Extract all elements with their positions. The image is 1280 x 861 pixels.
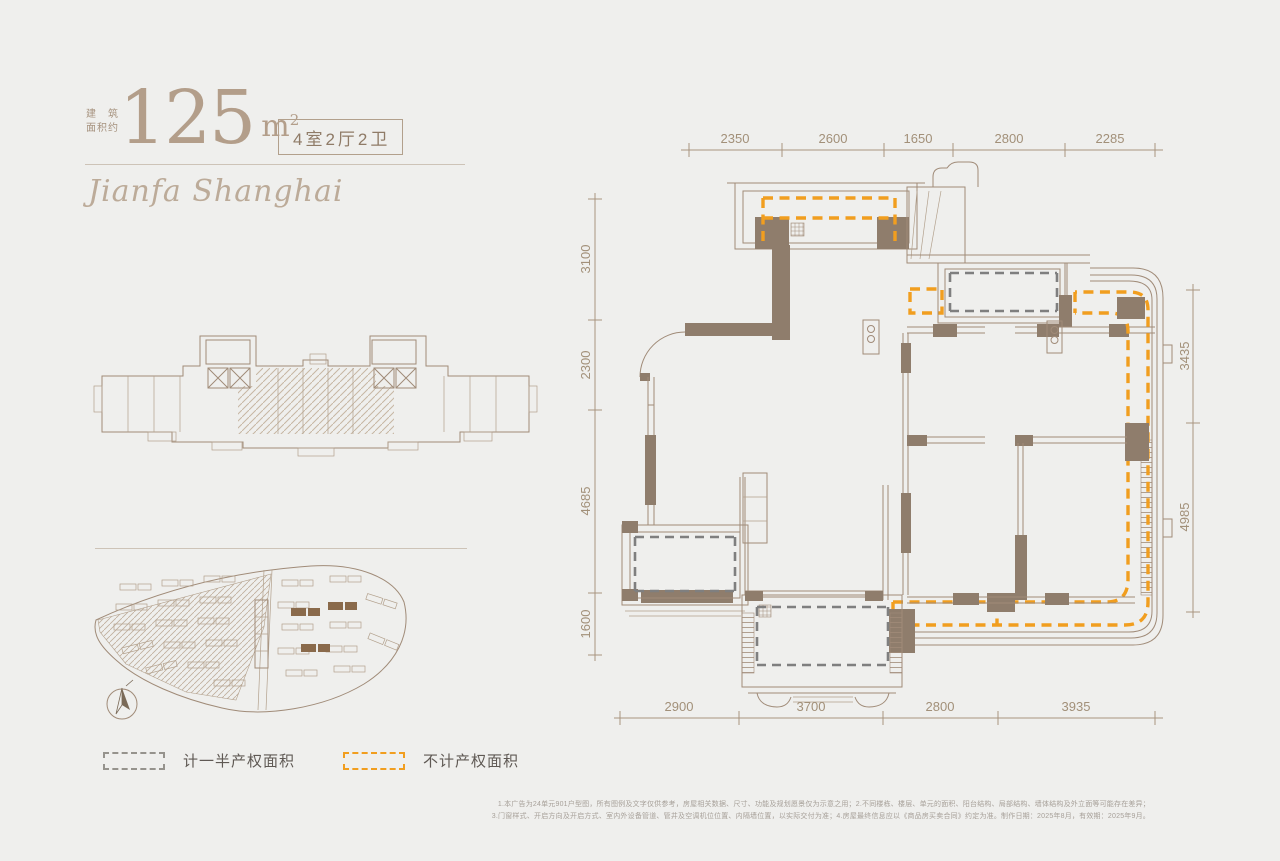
legend-label-excluded: 不计产权面积 — [423, 750, 519, 771]
disclaimer: 1.本广告为24单元901户型图，所有图例及文字仅供参考，房屋相关数据、尺寸、功… — [470, 799, 1150, 823]
southwest-balcony-dashes — [635, 537, 735, 591]
entry-canopy — [933, 162, 978, 187]
area-label-line2: 面积约 — [86, 122, 119, 136]
entry-stair-block — [907, 162, 978, 263]
dim-chain-bottom: 2900 3700 2800 3935 — [614, 699, 1163, 725]
brand-script: Jianfa Shanghai — [88, 174, 343, 209]
room-tag-badge: 4室2厅2卫 — [278, 119, 403, 155]
bay-half-property-dashes — [950, 273, 1057, 311]
entry-door-arc — [640, 332, 685, 377]
dim-chain-right: 3435 4985 — [1177, 284, 1200, 618]
dim-top-3: 1650 — [904, 131, 933, 146]
legend-swatch-half-property — [103, 752, 165, 770]
divider-middle — [95, 548, 467, 549]
south-balcony-dashes — [757, 607, 888, 665]
sink-fixture-left — [863, 320, 879, 354]
dim-left-3: 4685 — [578, 487, 593, 516]
dim-top-2: 2600 — [819, 131, 848, 146]
compass-icon — [107, 680, 137, 719]
dim-bottom-3: 2800 — [926, 699, 955, 714]
area-label-line1: 建 筑 — [86, 108, 119, 122]
dim-bottom-1: 2900 — [665, 699, 694, 714]
dim-left-1: 3100 — [578, 245, 593, 274]
dim-bottom-2: 3700 — [797, 699, 826, 714]
north-balcony — [727, 183, 925, 249]
interior-walls — [641, 333, 1145, 605]
south-balcony — [742, 591, 902, 707]
dim-top-5: 2285 — [1096, 131, 1125, 146]
legend-swatch-excluded — [343, 752, 405, 770]
legend: 计一半产权面积 不计产权面积 — [103, 750, 519, 771]
kitchen-counter — [743, 473, 767, 543]
area-value: 125 — [119, 84, 254, 152]
ac-platform-excluded-dashes — [910, 289, 942, 313]
north-bay-room — [863, 255, 1155, 354]
wrap-balcony — [889, 268, 1172, 653]
divider-top — [85, 164, 465, 165]
unit-floor-plan: 2350 2600 1650 2800 2285 3100 2300 4685 … — [545, 105, 1265, 765]
dim-top-1: 2350 — [721, 131, 750, 146]
dim-right-1: 3435 — [1177, 342, 1192, 371]
highlighted-units — [238, 368, 394, 434]
site-highlighted-buildings — [291, 602, 357, 652]
floorplan-page: 建 筑 面积约 125 m2 4室2厅2卫 Jianfa Shanghai — [0, 0, 1280, 861]
dim-left-2: 2300 — [578, 351, 593, 380]
area-block: 建 筑 面积约 125 m2 — [86, 84, 299, 152]
dim-chain-left: 3100 2300 4685 1600 — [578, 193, 602, 661]
legend-label-half-property: 计一半产权面积 — [183, 750, 295, 771]
dim-left-4: 1600 — [578, 610, 593, 639]
disclaimer-line1: 1.本广告为24单元901户型图，所有图例及文字仅供参考，房屋相关数据、尺寸、功… — [470, 799, 1150, 811]
site-buildings-right — [278, 576, 399, 676]
dim-bottom-4: 3935 — [1062, 699, 1091, 714]
disclaimer-line2: 3.门窗样式、开启方向及开启方式、室内外设备管道、管井及空调机位位置、内隔墙位置… — [470, 811, 1150, 823]
area-label: 建 筑 面积约 — [86, 108, 119, 136]
dim-chain-top: 2350 2600 1650 2800 2285 — [681, 131, 1163, 157]
dim-top-4: 2800 — [995, 131, 1024, 146]
dim-right-2: 4985 — [1177, 503, 1192, 532]
site-map — [86, 552, 421, 742]
building-key-plan — [88, 326, 543, 476]
